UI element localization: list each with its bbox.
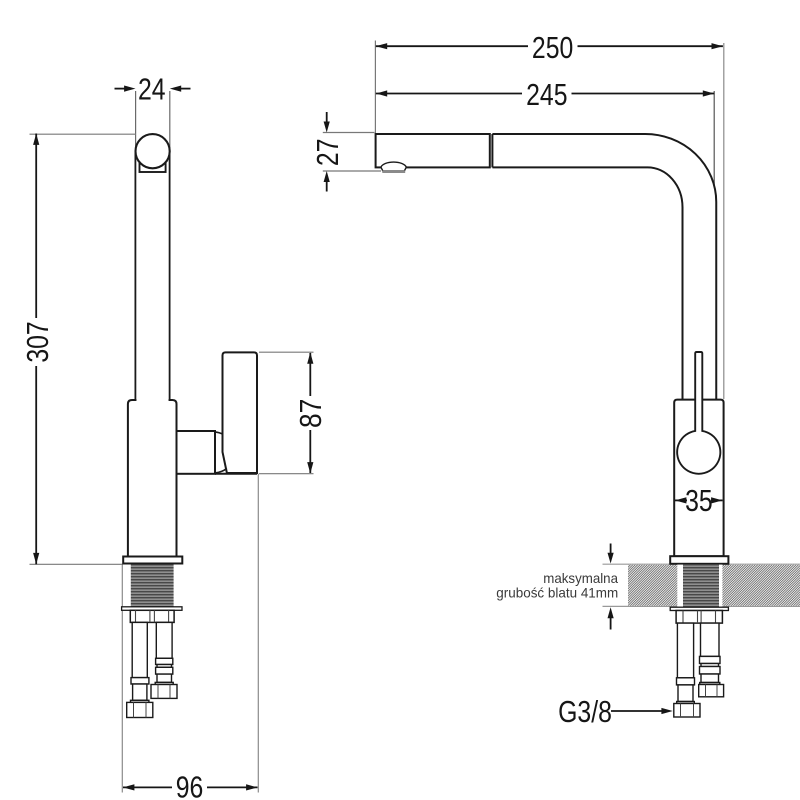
- svg-text:307: 307: [20, 321, 54, 362]
- svg-text:245: 245: [526, 77, 567, 111]
- svg-text:G3/8: G3/8: [558, 694, 612, 728]
- svg-text:250: 250: [532, 30, 573, 64]
- svg-text:grubość blatu 41mm: grubość blatu 41mm: [496, 585, 618, 601]
- svg-text:27: 27: [310, 139, 344, 167]
- svg-text:96: 96: [176, 770, 204, 800]
- svg-text:87: 87: [294, 399, 328, 428]
- svg-text:24: 24: [138, 72, 166, 106]
- svg-text:maksymalna: maksymalna: [543, 570, 618, 586]
- svg-text:35: 35: [685, 483, 713, 517]
